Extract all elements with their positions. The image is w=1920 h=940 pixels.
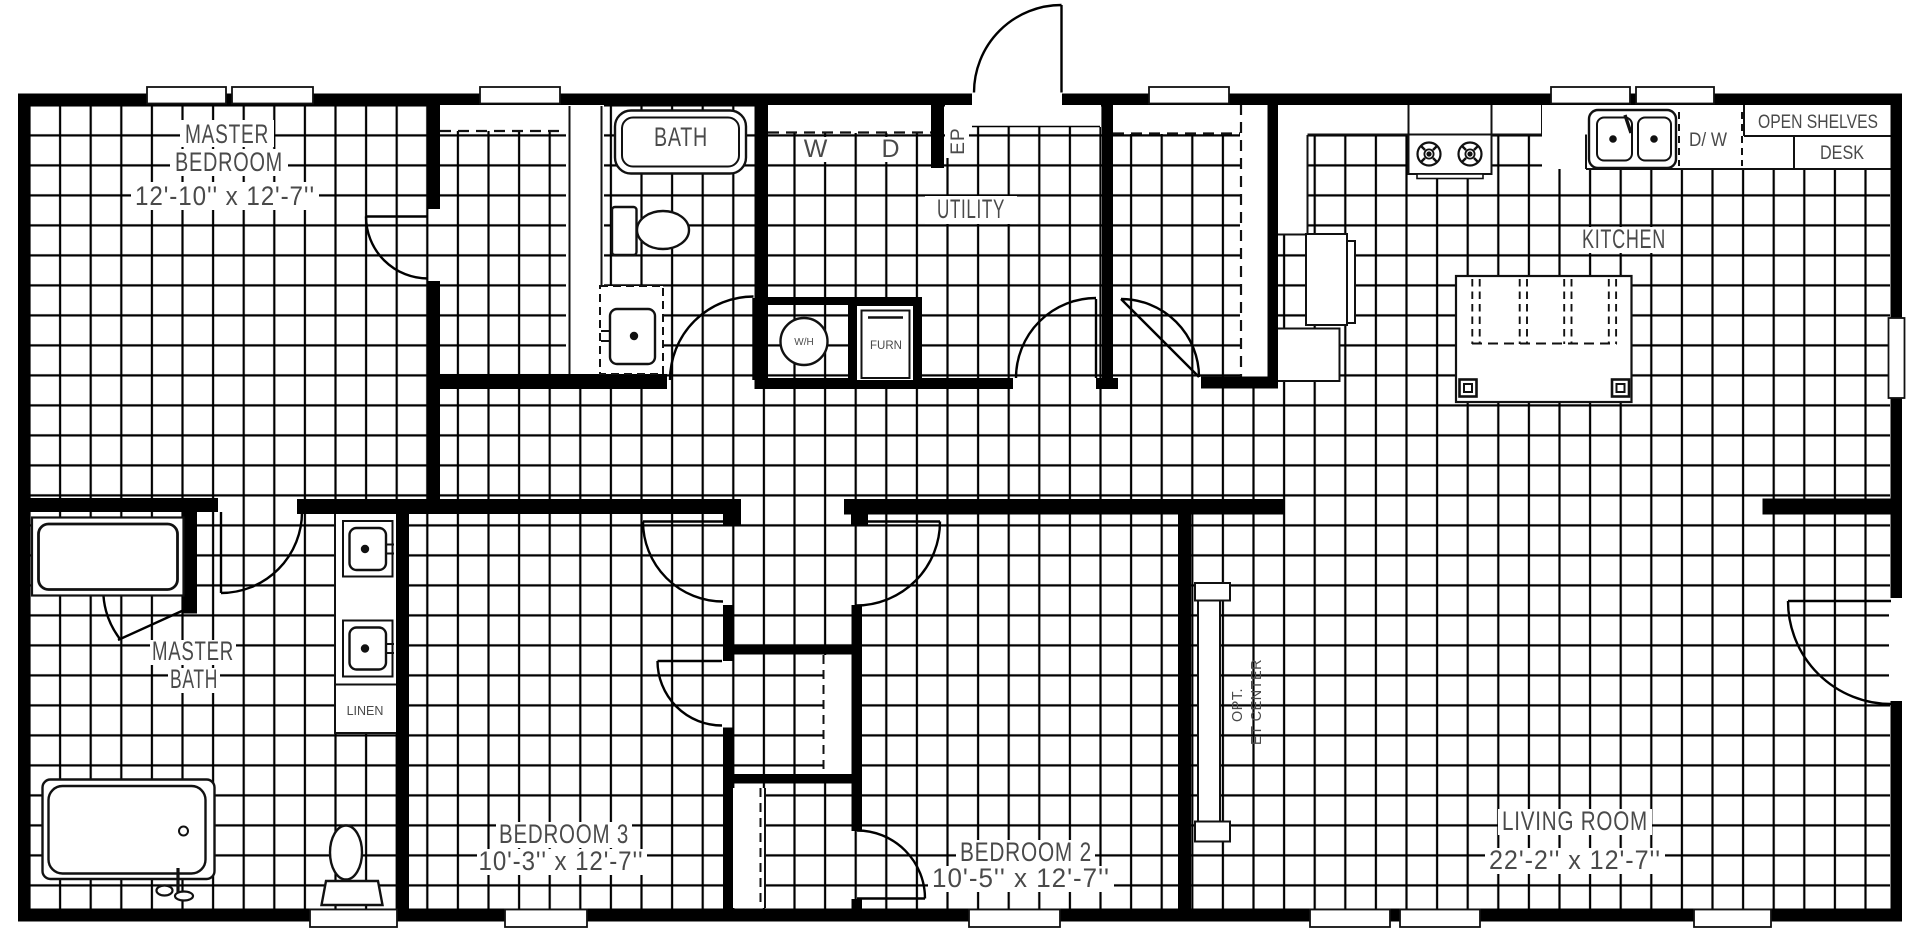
svg-text:W/H: W/H [794,337,813,348]
svg-text:ET CENTER: ET CENTER [1249,659,1265,745]
svg-text:KITCHEN: KITCHEN [1582,224,1666,254]
svg-text:FURN: FURN [870,340,902,352]
svg-text:22'-2'' x 12'-7'': 22'-2'' x 12'-7'' [1489,845,1661,875]
svg-text:BATH: BATH [654,122,708,152]
svg-text:W: W [804,135,829,163]
svg-text:BEDROOM 3: BEDROOM 3 [499,819,629,849]
svg-text:MASTER: MASTER [152,636,234,666]
svg-text:LIVING ROOM: LIVING ROOM [1502,806,1648,836]
svg-text:OPEN SHELVES: OPEN SHELVES [1758,112,1878,133]
svg-text:LINEN: LINEN [347,704,384,718]
svg-text:DESK: DESK [1820,143,1864,164]
svg-text:EP: EP [948,127,969,154]
svg-text:BEDROOM: BEDROOM [175,147,283,177]
svg-text:D: D [881,135,900,163]
svg-text:BATH: BATH [170,664,218,694]
svg-text:D/ W: D/ W [1689,130,1727,151]
svg-text:OPT.: OPT. [1230,688,1246,722]
svg-text:12'-10'' x 12'-7'': 12'-10'' x 12'-7'' [135,181,315,211]
svg-text:UTILITY: UTILITY [937,194,1005,224]
svg-text:10'-3'' x 12'-7'': 10'-3'' x 12'-7'' [479,846,644,876]
svg-text:MASTER: MASTER [185,119,269,149]
svg-text:10'-5'' x 12'-7'': 10'-5'' x 12'-7'' [932,863,1110,893]
